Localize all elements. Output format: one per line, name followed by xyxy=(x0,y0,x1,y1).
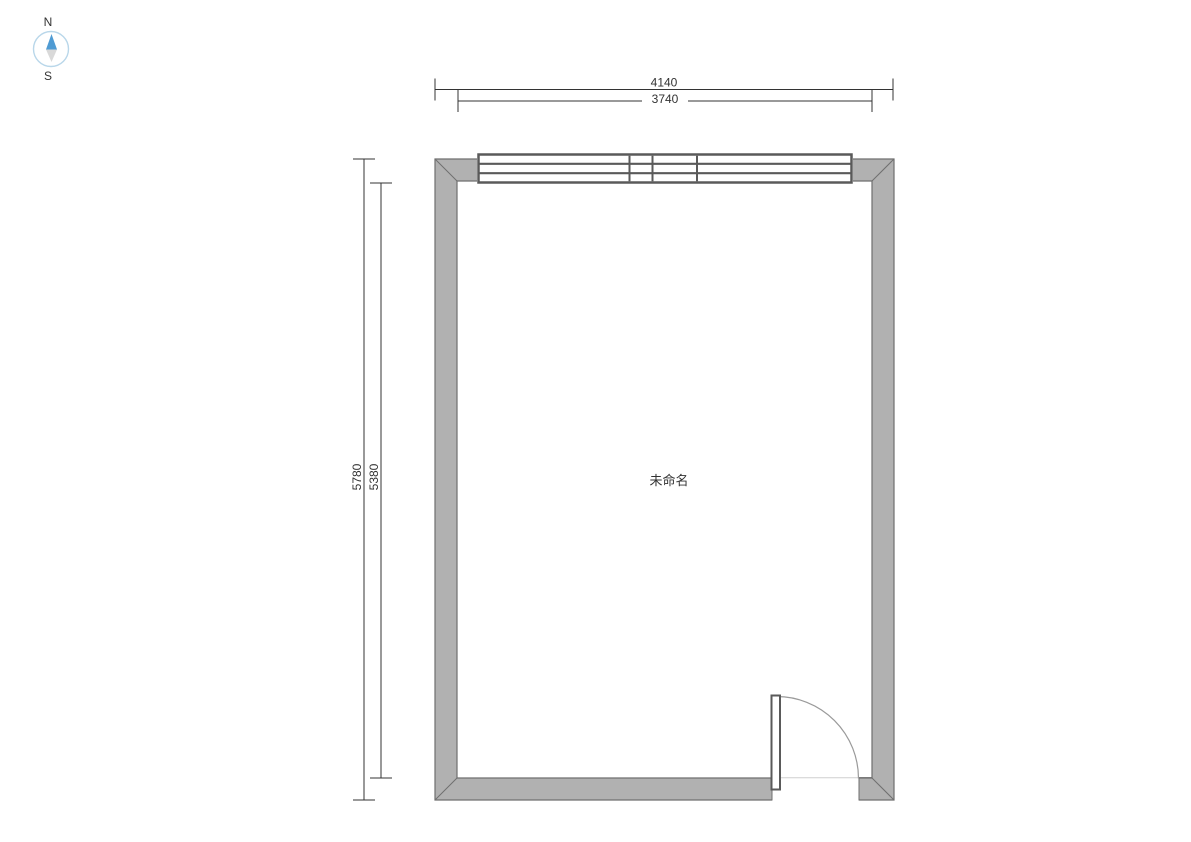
door[interactable] xyxy=(772,696,860,790)
door-opening-gap xyxy=(772,777,859,802)
compass-north-label: N xyxy=(44,15,53,29)
window-frame[interactable] xyxy=(479,155,852,183)
dimension-left-inner: 5380 xyxy=(367,183,392,778)
dimension-top-inner: 3740 xyxy=(458,90,872,112)
dimension-label: 5780 xyxy=(350,463,364,490)
compass-south-label: S xyxy=(44,69,52,83)
dimension-label: 3740 xyxy=(652,92,679,106)
floorplan-canvas: N S 4140 3740 5780 xyxy=(0,0,1191,842)
room-label[interactable]: 未命名 xyxy=(649,473,688,488)
door-swing-arc xyxy=(777,697,859,779)
dimension-label: 4140 xyxy=(651,76,678,90)
dimension-label: 5380 xyxy=(367,463,381,490)
compass: N S xyxy=(34,15,69,83)
floorplan-svg: N S 4140 3740 5780 xyxy=(0,0,1191,842)
door-leaf[interactable] xyxy=(772,696,781,790)
window[interactable] xyxy=(477,153,853,184)
